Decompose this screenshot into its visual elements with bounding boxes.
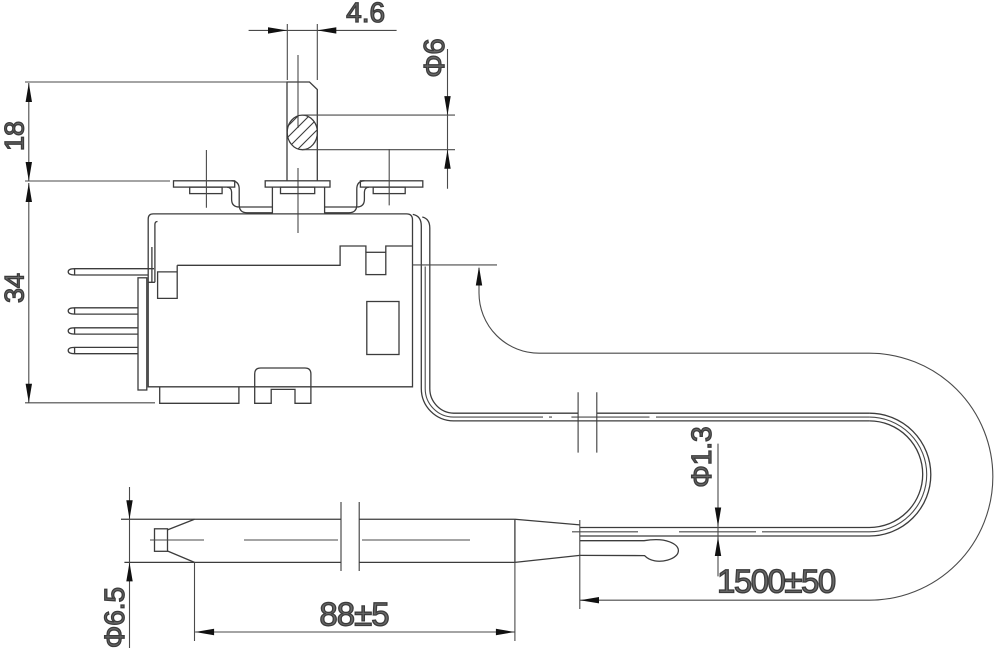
svg-text:Φ6.5: Φ6.5 [99, 587, 130, 648]
svg-text:34: 34 [0, 273, 29, 303]
svg-text:1500±50: 1500±50 [717, 563, 836, 600]
svg-text:18: 18 [0, 121, 29, 151]
svg-text:88±5: 88±5 [319, 596, 388, 633]
svg-text:4.6: 4.6 [346, 0, 385, 28]
svg-text:Φ1.3: Φ1.3 [686, 426, 717, 487]
svg-text:Φ6: Φ6 [419, 38, 451, 77]
